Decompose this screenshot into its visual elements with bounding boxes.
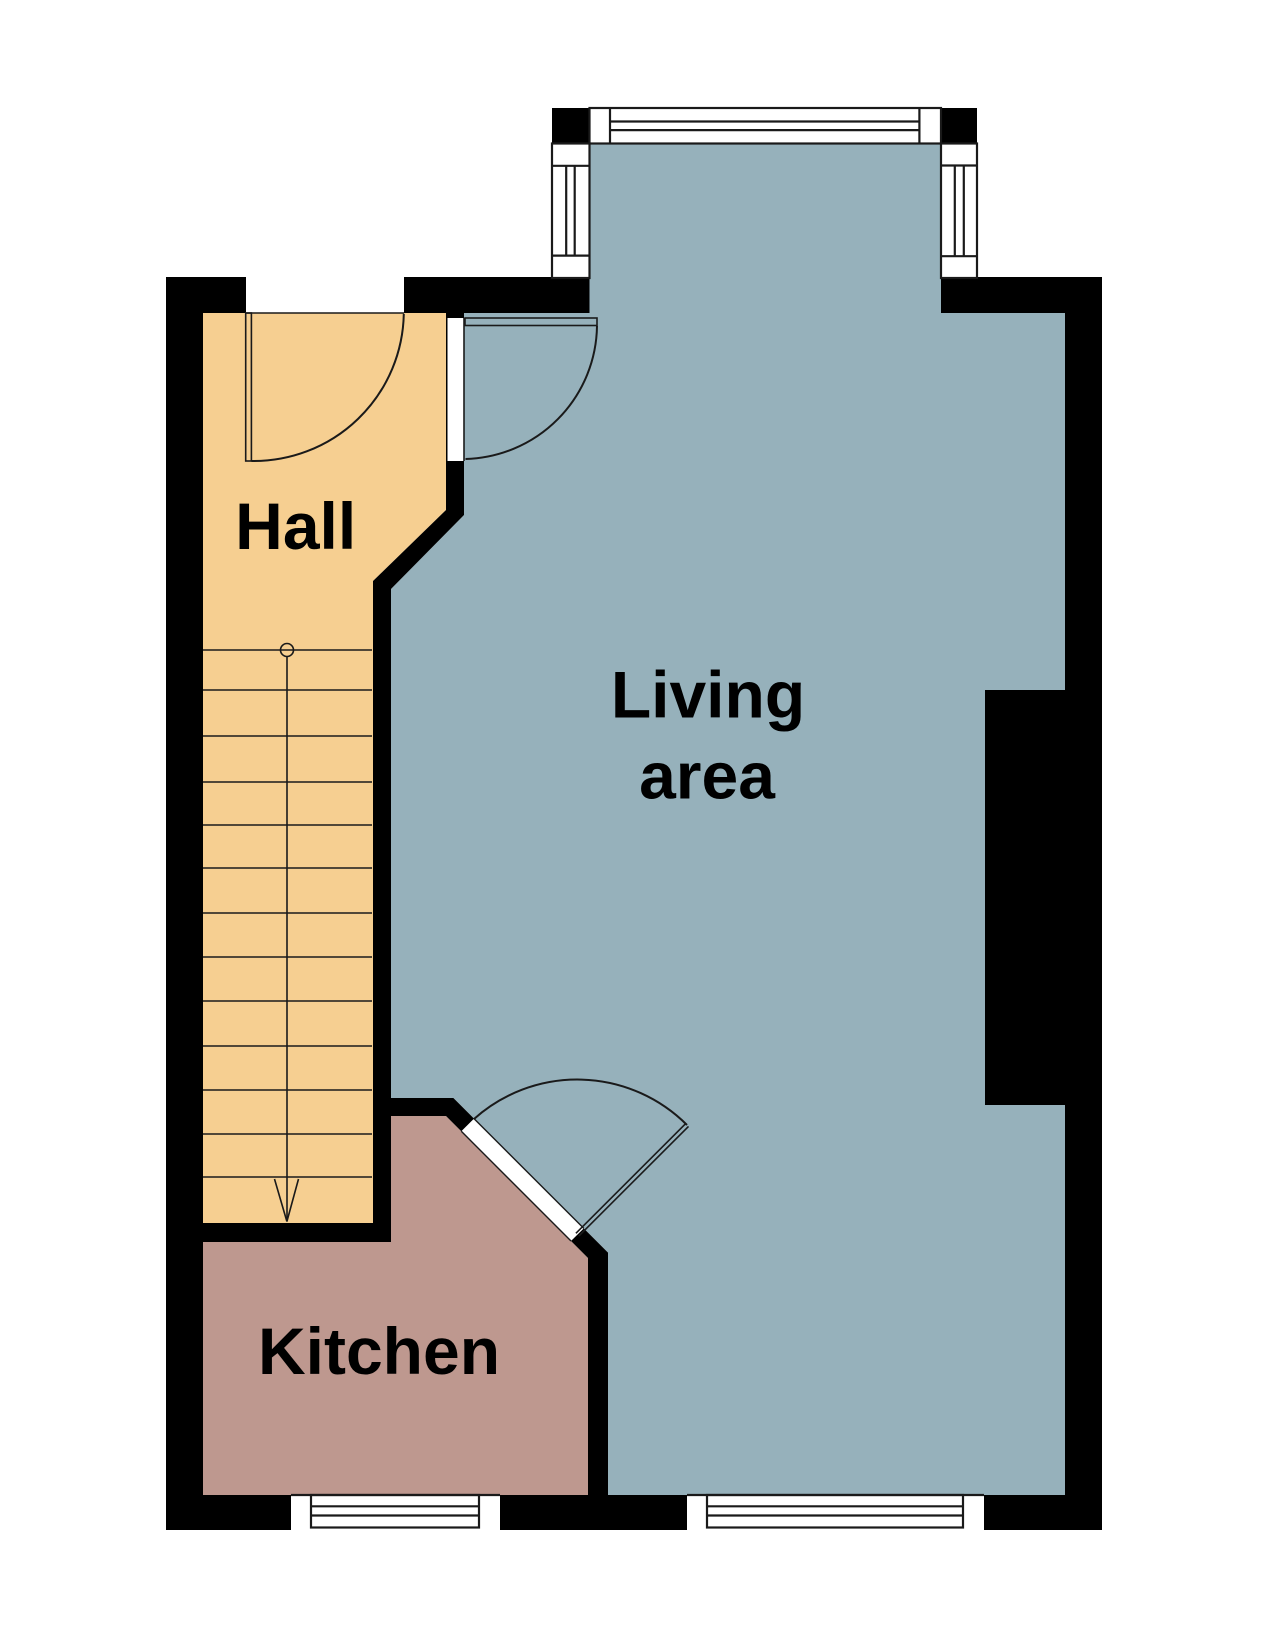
svg-text:Hall: Hall	[235, 489, 356, 563]
svg-text:Living: Living	[611, 657, 805, 731]
svg-text:Kitchen: Kitchen	[258, 1314, 500, 1388]
svg-text:area: area	[639, 739, 776, 813]
